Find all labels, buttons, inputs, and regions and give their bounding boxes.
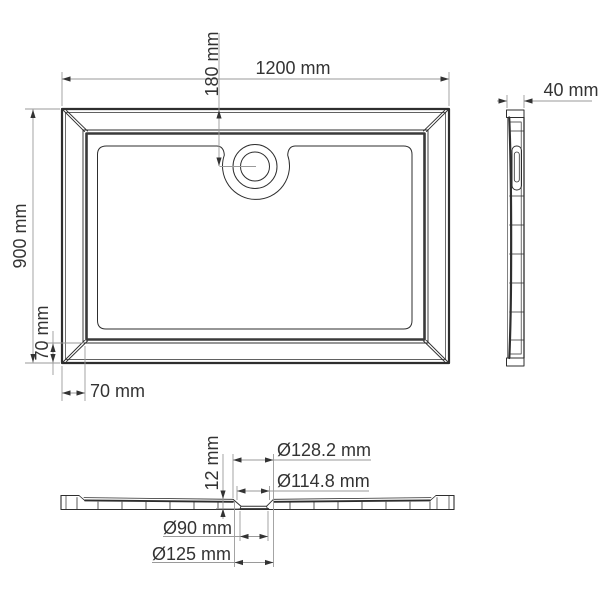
side-view — [507, 110, 525, 366]
dim-waste-hole-dia: Ø90 mm — [163, 511, 268, 541]
dim-label-waste-outer-dia: Ø125 mm — [152, 544, 231, 564]
dim-label-overall-width: 1200 mm — [255, 58, 330, 78]
dim-label-drain-offset: 180 mm — [202, 31, 222, 96]
dim-label-flange-dia: Ø128.2 mm — [277, 440, 371, 460]
top-view-outer-edge — [62, 109, 449, 363]
side-view-drain-pocket — [512, 146, 522, 190]
dim-label-side-thickness: 40 mm — [543, 80, 598, 100]
dim-overall-width: 1200 mm — [62, 58, 449, 106]
drawing-page: 1200 mm 180 mm 900 mm 70 mm 70 mm — [0, 0, 600, 600]
dim-flange-dia: Ø128.2 mm — [233, 440, 371, 567]
dim-recess-dia: Ø114.8 mm — [237, 471, 370, 500]
top-view-rim — [83, 130, 428, 343]
section-view — [61, 496, 454, 510]
dim-label-overall-depth: 900 mm — [10, 203, 30, 268]
section-drain-recess — [233, 499, 274, 509]
dim-label-rim-bottom: 70 mm — [90, 381, 145, 401]
dim-label-recess-dia: Ø114.8 mm — [277, 471, 370, 491]
dim-rim-left: 70 mm — [32, 305, 84, 375]
dim-label-rim-left: 70 mm — [32, 305, 52, 360]
dim-label-waste-hole-dia: Ø90 mm — [163, 518, 232, 538]
dim-side-thickness: 40 mm — [497, 80, 599, 108]
section-profile — [61, 496, 454, 510]
section-ribs — [77, 498, 437, 510]
top-view — [62, 109, 449, 363]
dim-label-recess-depth: 12 mm — [202, 435, 222, 490]
shower-tray-technical-drawing: 1200 mm 180 mm 900 mm 70 mm 70 mm — [0, 0, 600, 600]
tray-floor-outline — [98, 146, 413, 329]
top-view-corner-chamfers — [63, 110, 448, 362]
